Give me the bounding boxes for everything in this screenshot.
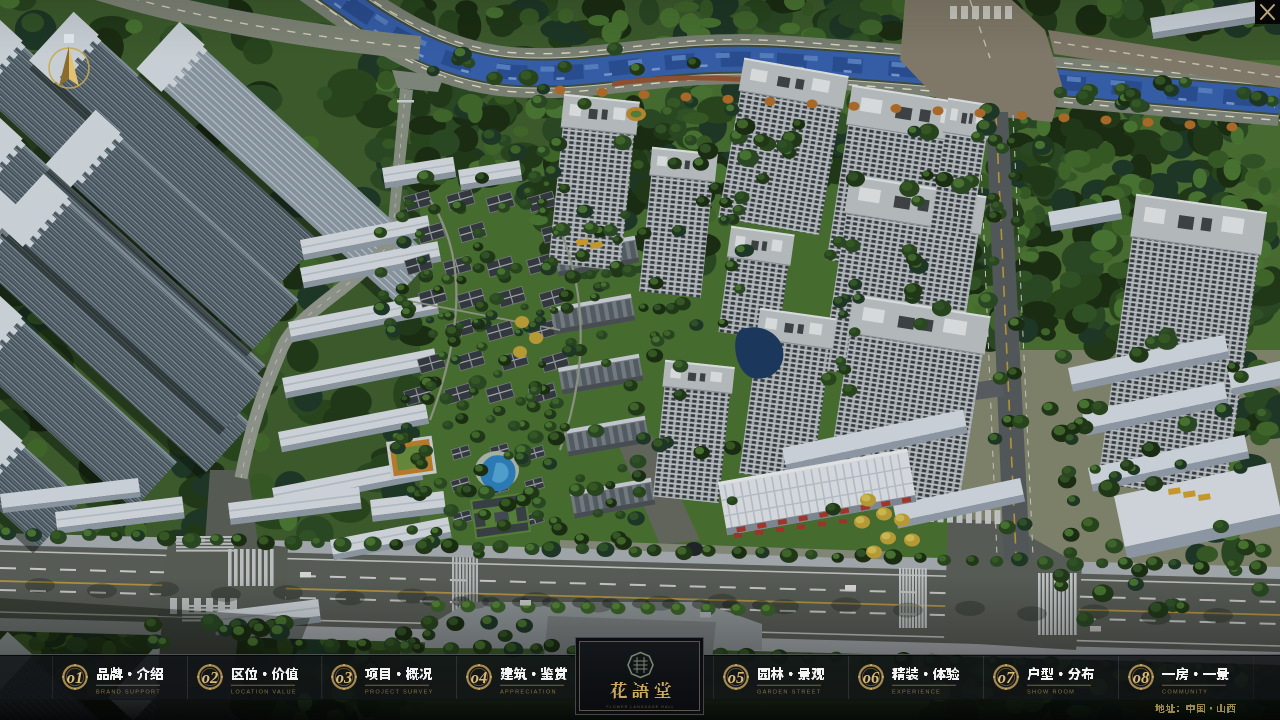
svg-text:PROJECT SURVEY: PROJECT SURVEY	[365, 690, 434, 696]
svg-text:GARDEN STREET: GARDEN STREET	[757, 690, 821, 696]
svg-text:COMMUNITY: COMMUNITY	[1162, 690, 1208, 696]
svg-text:LOCATION VALUE: LOCATION VALUE	[231, 690, 297, 696]
svg-text:o1: o1	[67, 668, 84, 687]
svg-text:o7: o7	[998, 668, 1015, 687]
svg-text:APPRECIATION: APPRECIATION	[500, 690, 557, 696]
svg-text:EXPERIENCE: EXPERIENCE	[892, 690, 941, 696]
svg-text:o8: o8	[1133, 668, 1150, 687]
svg-text:o4: o4	[470, 668, 487, 687]
svg-text:SHOW ROOM: SHOW ROOM	[1027, 690, 1075, 696]
svg-text:FLOWER LANGUAGE HALL: FLOWER LANGUAGE HALL	[606, 705, 674, 709]
svg-text:o5: o5	[728, 668, 745, 687]
svg-text:o3: o3	[336, 668, 353, 687]
svg-text:o2: o2	[201, 668, 218, 687]
svg-text:o6: o6	[863, 668, 880, 687]
svg-text:BRAND SUPPORT: BRAND SUPPORT	[96, 690, 161, 696]
